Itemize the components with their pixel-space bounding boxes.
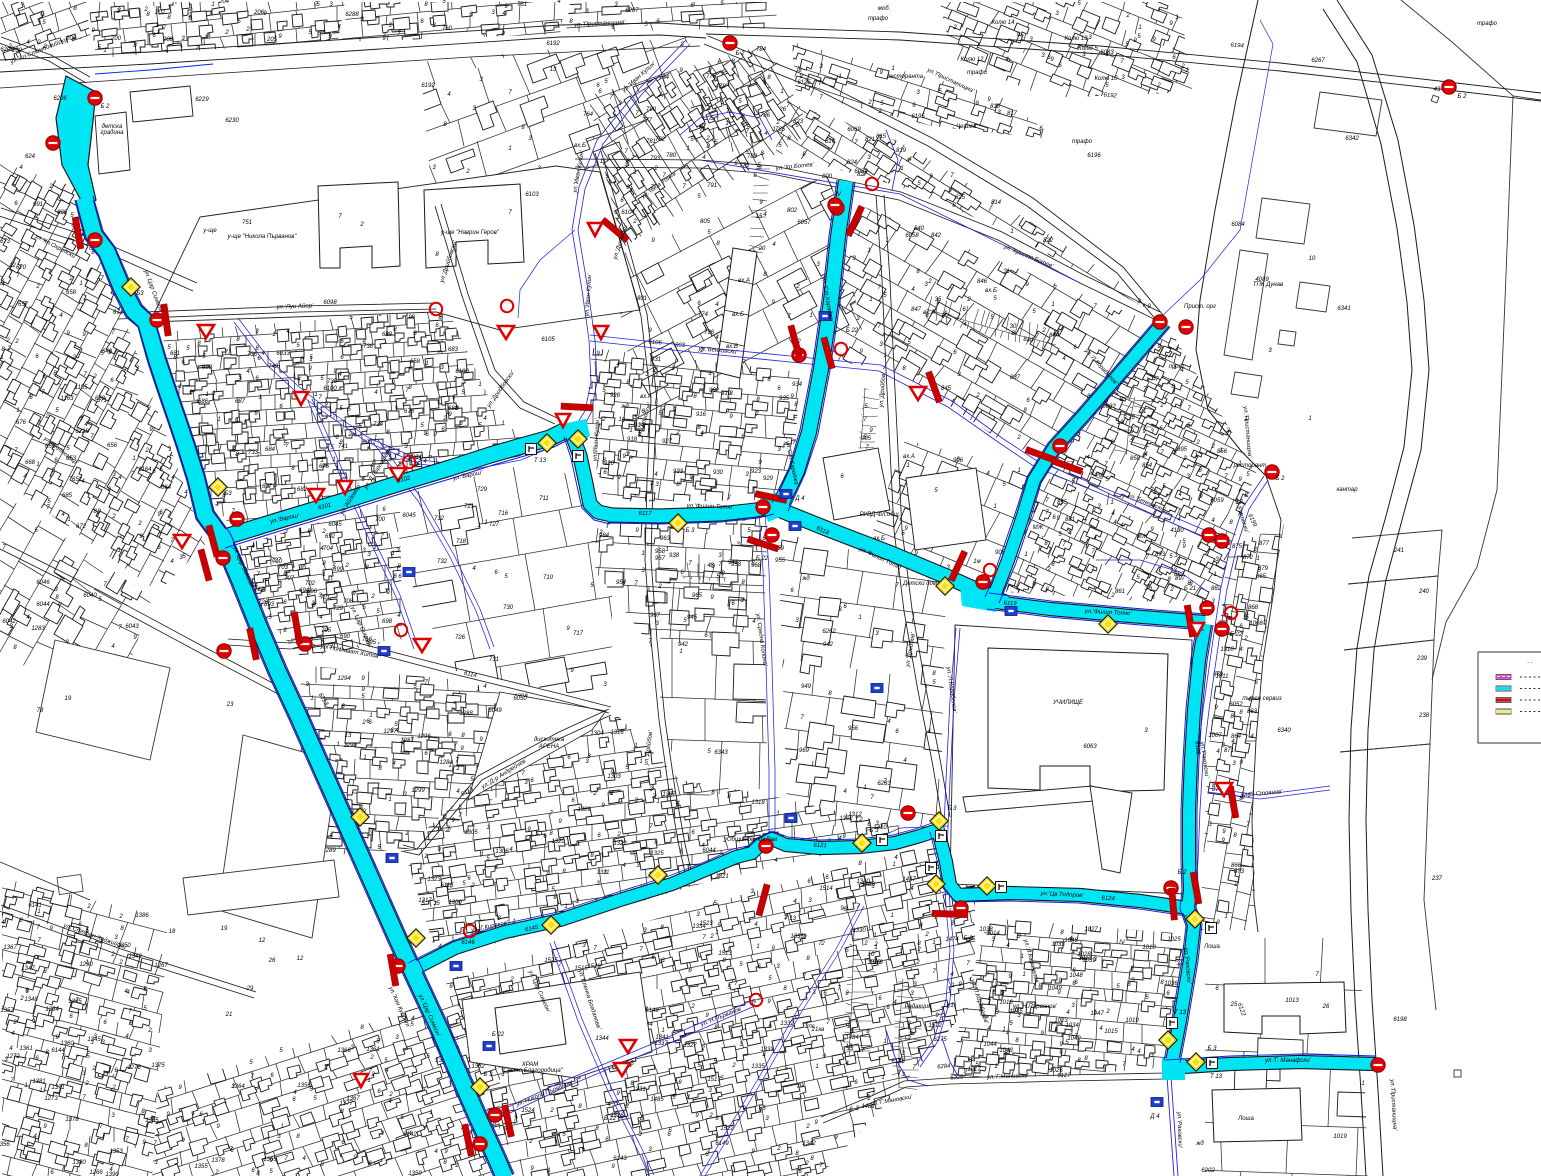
svg-text:2: 2 xyxy=(5,338,10,344)
svg-text:2: 2 xyxy=(709,934,714,940)
svg-text:1м: 1м xyxy=(973,559,980,565)
svg-text:686: 686 xyxy=(198,399,209,405)
svg-text:1517: 1517 xyxy=(707,1077,721,1083)
svg-text:2: 2 xyxy=(1005,1030,1010,1036)
svg-text:1347: 1347 xyxy=(21,966,35,972)
svg-text:1: 1 xyxy=(1185,68,1188,74)
svg-text:1: 1 xyxy=(951,983,954,989)
svg-text:949: 949 xyxy=(801,684,812,690)
svg-text:2: 2 xyxy=(214,1170,219,1176)
svg-text:6100: 6100 xyxy=(455,369,469,375)
svg-text:673: 673 xyxy=(0,239,11,245)
svg-text:1: 1 xyxy=(1022,972,1025,978)
svg-text:678: 678 xyxy=(404,409,415,415)
svg-text:6106: 6106 xyxy=(648,340,662,347)
svg-text:1: 1 xyxy=(1048,1056,1051,1062)
svg-text:827: 827 xyxy=(857,172,868,178)
svg-text:658: 658 xyxy=(410,359,421,365)
svg-text:846: 846 xyxy=(977,279,988,285)
svg-text:819: 819 xyxy=(896,148,907,154)
svg-text:1: 1 xyxy=(168,447,171,453)
svg-text:729: 729 xyxy=(333,606,344,612)
svg-text:2: 2 xyxy=(19,996,24,1002)
svg-text:13: 13 xyxy=(550,67,557,73)
svg-text:2: 2 xyxy=(1052,330,1057,336)
svg-text:2: 2 xyxy=(549,1108,554,1114)
svg-text:1: 1 xyxy=(1361,1081,1364,1087)
svg-text:2: 2 xyxy=(118,914,123,920)
svg-text:жд: жд xyxy=(801,576,810,582)
svg-text:1296: 1296 xyxy=(417,734,431,740)
svg-text:1518: 1518 xyxy=(869,960,883,966)
svg-text:РУВД-Фл.общ.: РУВД-Фл.общ. xyxy=(860,512,901,518)
svg-text:2: 2 xyxy=(146,406,151,412)
svg-text:Б 22: Б 22 xyxy=(756,556,769,562)
svg-text:6045: 6045 xyxy=(402,513,416,519)
svg-text:Б 22: Б 22 xyxy=(846,328,859,334)
svg-text:2: 2 xyxy=(442,416,447,422)
svg-text:727: 727 xyxy=(489,522,500,528)
svg-text:35: 35 xyxy=(935,297,942,303)
svg-text:1: 1 xyxy=(103,48,106,54)
svg-text:688: 688 xyxy=(202,365,213,371)
svg-text:872: 872 xyxy=(1243,555,1254,561)
svg-text:1: 1 xyxy=(314,392,317,398)
svg-text:1: 1 xyxy=(715,930,718,936)
svg-text:1364: 1364 xyxy=(45,1007,59,1013)
svg-text:6069: 6069 xyxy=(847,127,861,133)
svg-text:1: 1 xyxy=(486,825,489,831)
svg-text:1519: 1519 xyxy=(587,964,601,970)
svg-text:2: 2 xyxy=(323,1065,328,1071)
svg-text:855: 855 xyxy=(1057,500,1068,506)
svg-text:ІV: ІV xyxy=(835,192,842,198)
svg-text:1: 1 xyxy=(85,960,88,966)
svg-text:1: 1 xyxy=(1213,572,1216,578)
svg-text:792: 792 xyxy=(655,137,666,143)
svg-text:1034: 1034 xyxy=(1065,1023,1079,1029)
svg-text:19: 19 xyxy=(65,696,72,702)
svg-text:897: 897 xyxy=(1175,576,1186,582)
svg-text:727: 727 xyxy=(271,558,282,564)
svg-text:2: 2 xyxy=(858,817,863,823)
svg-text:1: 1 xyxy=(75,1168,78,1174)
svg-text:6267: 6267 xyxy=(1311,58,1325,64)
svg-text:1: 1 xyxy=(369,713,372,719)
svg-text:трафо: трафо xyxy=(1477,21,1498,27)
svg-text:жд: жд xyxy=(1195,1141,1204,1147)
svg-text:684: 684 xyxy=(265,447,276,453)
svg-text:1305: 1305 xyxy=(464,830,478,836)
svg-text:1018: 1018 xyxy=(1142,945,1156,951)
svg-text:4130: 4130 xyxy=(1170,528,1184,534)
svg-text:2: 2 xyxy=(446,828,451,834)
svg-text:2: 2 xyxy=(690,1004,695,1010)
svg-text:1357: 1357 xyxy=(0,1008,14,1014)
svg-text:1: 1 xyxy=(1002,1027,1005,1033)
svg-text:938: 938 xyxy=(669,553,680,559)
svg-text:873: 873 xyxy=(1234,869,1245,875)
svg-text:1: 1 xyxy=(869,297,872,303)
svg-text:20: 20 xyxy=(758,246,766,252)
svg-text:2: 2 xyxy=(1046,567,1051,573)
svg-text:трафо: трафо xyxy=(1072,139,1093,145)
svg-text:64: 64 xyxy=(969,1058,976,1064)
svg-text:672: 672 xyxy=(76,524,87,530)
svg-text:2: 2 xyxy=(84,1081,89,1087)
svg-text:2: 2 xyxy=(71,355,76,361)
svg-text:1: 1 xyxy=(890,913,893,919)
svg-text:1038: 1038 xyxy=(979,927,993,933)
svg-text:1336: 1336 xyxy=(790,934,804,940)
svg-text:1: 1 xyxy=(883,1039,886,1045)
svg-text:2: 2 xyxy=(1159,403,1164,409)
svg-text:239: 239 xyxy=(1416,656,1428,662)
svg-text:1: 1 xyxy=(476,687,479,693)
svg-text:2: 2 xyxy=(384,332,389,338)
svg-text:935: 935 xyxy=(779,396,790,402)
svg-text:1: 1 xyxy=(776,811,779,817)
svg-text:2: 2 xyxy=(470,883,475,889)
svg-text:13: 13 xyxy=(1117,420,1124,426)
svg-text:1013: 1013 xyxy=(1078,956,1092,962)
svg-text:777: 777 xyxy=(642,118,653,124)
svg-text:2: 2 xyxy=(653,166,658,172)
svg-text:Т 13: Т 13 xyxy=(784,916,797,922)
svg-text:945: 945 xyxy=(687,615,698,621)
svg-text:1016: 1016 xyxy=(999,1000,1013,1006)
svg-text:Колю 5: Колю 5 xyxy=(1078,46,1098,52)
svg-text:2: 2 xyxy=(68,276,73,282)
svg-text:1155: 1155 xyxy=(75,385,89,391)
svg-text:1: 1 xyxy=(994,1064,997,1070)
svg-text:238: 238 xyxy=(1418,713,1430,719)
svg-text:6149: 6149 xyxy=(645,1008,659,1014)
svg-text:1514: 1514 xyxy=(819,886,833,892)
svg-text:1: 1 xyxy=(67,517,70,523)
svg-text:1386: 1386 xyxy=(135,913,149,919)
svg-text:842: 842 xyxy=(931,233,942,239)
svg-text:1290: 1290 xyxy=(343,743,357,749)
svg-text:2: 2 xyxy=(118,960,123,966)
svg-text:1: 1 xyxy=(679,649,682,655)
svg-text:Б 21: Б 21 xyxy=(1184,586,1196,592)
svg-text:УЧИЛИЩЕ: УЧИЛИЩЕ xyxy=(1052,700,1084,706)
svg-text:2: 2 xyxy=(92,374,97,380)
svg-text:2: 2 xyxy=(528,1139,533,1145)
svg-text:6052: 6052 xyxy=(1229,702,1243,708)
svg-text:963: 963 xyxy=(660,536,671,542)
svg-text:1: 1 xyxy=(665,547,668,553)
svg-text:1: 1 xyxy=(211,2,214,8)
svg-text:991: 991 xyxy=(33,202,43,208)
svg-text:17: 17 xyxy=(858,1048,865,1054)
svg-text:1361: 1361 xyxy=(19,1046,32,1052)
svg-text:2: 2 xyxy=(624,1104,629,1110)
svg-text:6284: 6284 xyxy=(937,1063,951,1070)
svg-text:1378: 1378 xyxy=(65,1117,79,1123)
svg-text:6100: 6100 xyxy=(323,386,337,392)
svg-text:1: 1 xyxy=(32,1019,35,1025)
svg-text:677: 677 xyxy=(262,484,273,490)
svg-text:676: 676 xyxy=(16,420,27,426)
svg-text:1: 1 xyxy=(1219,448,1222,454)
svg-text:957: 957 xyxy=(655,556,666,562)
svg-text:1355: 1355 xyxy=(194,1164,208,1170)
svg-text:2: 2 xyxy=(632,219,637,225)
svg-text:1: 1 xyxy=(309,357,312,363)
svg-text:6198: 6198 xyxy=(1393,1017,1407,1023)
svg-text:928: 928 xyxy=(610,393,621,399)
svg-text:2: 2 xyxy=(12,1020,17,1026)
svg-text:6192: 6192 xyxy=(546,41,560,47)
svg-text:732: 732 xyxy=(437,559,448,565)
svg-text:854: 854 xyxy=(1142,463,1153,469)
svg-text:1015: 1015 xyxy=(1104,1029,1118,1035)
svg-text:1380: 1380 xyxy=(72,1160,86,1166)
svg-text:2: 2 xyxy=(509,977,514,983)
svg-text:1: 1 xyxy=(280,1124,283,1130)
svg-text:1163: 1163 xyxy=(61,396,75,402)
svg-text:Колю 14: Колю 14 xyxy=(992,20,1016,26)
svg-text:1019: 1019 xyxy=(1125,1018,1139,1024)
svg-text:783: 783 xyxy=(747,154,758,160)
svg-text:1: 1 xyxy=(892,862,895,868)
svg-text:Б 2: Б 2 xyxy=(1178,870,1188,876)
svg-text:923: 923 xyxy=(751,469,762,475)
svg-text:2: 2 xyxy=(289,639,294,645)
svg-text:774: 774 xyxy=(698,312,709,318)
svg-text:793: 793 xyxy=(650,156,661,162)
svg-text:934: 934 xyxy=(792,382,803,388)
svg-text:729: 729 xyxy=(477,487,488,493)
svg-text:6050: 6050 xyxy=(513,696,527,702)
svg-text:760: 760 xyxy=(442,26,453,32)
svg-text:ІV: ІV xyxy=(1119,940,1126,946)
svg-text:2: 2 xyxy=(1169,587,1174,593)
svg-text:1: 1 xyxy=(212,391,215,397)
svg-text:1: 1 xyxy=(267,605,270,611)
svg-text:2: 2 xyxy=(369,1055,374,1061)
svg-text:6057: 6057 xyxy=(797,220,811,226)
svg-text:12: 12 xyxy=(259,938,266,944)
svg-text:871: 871 xyxy=(1224,748,1234,754)
svg-text:Б3: Б3 xyxy=(136,291,144,297)
svg-text:761: 761 xyxy=(517,2,527,8)
svg-text:2пс: 2пс xyxy=(804,1024,815,1030)
svg-text:1: 1 xyxy=(456,766,459,772)
svg-text:764: 764 xyxy=(583,112,594,118)
svg-text:1: 1 xyxy=(477,523,480,529)
svg-text:802: 802 xyxy=(787,208,798,214)
svg-text:716: 716 xyxy=(498,511,509,517)
svg-text:1524: 1524 xyxy=(521,1108,535,1114)
svg-text:1294: 1294 xyxy=(337,676,351,682)
svg-text:687: 687 xyxy=(235,399,246,405)
svg-text:Б 2: Б 2 xyxy=(1458,94,1468,100)
svg-text:1323: 1323 xyxy=(427,877,441,883)
svg-text:932: 932 xyxy=(709,388,720,394)
svg-text:ул.’Г. Манафски’: ул.’Г. Манафски’ xyxy=(1264,1058,1312,1064)
svg-text:1: 1 xyxy=(671,366,674,372)
svg-text:Б 22: Б 22 xyxy=(604,1116,617,1122)
svg-text:656: 656 xyxy=(107,443,118,449)
svg-text:21: 21 xyxy=(1139,409,1147,415)
svg-text:1: 1 xyxy=(117,548,120,554)
svg-text:6119: 6119 xyxy=(1003,601,1017,608)
svg-text:Б 3: Б 3 xyxy=(1208,1046,1218,1052)
svg-text:2: 2 xyxy=(35,284,40,290)
svg-text:1017: 1017 xyxy=(967,1067,981,1073)
svg-text:1378: 1378 xyxy=(211,1158,225,1164)
svg-text:1: 1 xyxy=(16,408,19,414)
svg-text:2: 2 xyxy=(91,1066,96,1072)
svg-text:Б 3: Б 3 xyxy=(484,1072,494,1078)
svg-text:1: 1 xyxy=(1006,269,1009,275)
svg-text:ресторант: ресторант xyxy=(1233,463,1267,469)
svg-text:1: 1 xyxy=(634,743,637,749)
svg-text:791: 791 xyxy=(707,183,717,189)
svg-text:1: 1 xyxy=(815,1064,818,1070)
svg-text:2: 2 xyxy=(802,935,807,941)
svg-text:895: 895 xyxy=(1177,447,1188,453)
svg-text:вх.А: вх.А xyxy=(738,278,750,284)
svg-text:204: 204 xyxy=(218,0,230,5)
svg-text:2: 2 xyxy=(685,1095,690,1101)
svg-text:1356: 1356 xyxy=(0,1142,10,1148)
svg-text:2: 2 xyxy=(952,25,957,31)
svg-text:1318: 1318 xyxy=(751,800,765,806)
svg-text:30: 30 xyxy=(1010,324,1017,330)
svg-text:6103: 6103 xyxy=(525,192,539,198)
svg-text:дискотека: дискотека xyxy=(534,737,565,743)
svg-text:2: 2 xyxy=(1110,593,1115,599)
svg-text:712: 712 xyxy=(434,516,445,522)
svg-text:1309: 1309 xyxy=(577,807,591,813)
svg-text:2: 2 xyxy=(705,136,710,142)
svg-text:734: 734 xyxy=(373,422,384,428)
svg-text:927: 927 xyxy=(662,439,673,445)
svg-text:1359: 1359 xyxy=(408,1171,422,1176)
svg-text:78: 78 xyxy=(37,708,44,714)
svg-text:19: 19 xyxy=(221,926,228,932)
svg-text:1: 1 xyxy=(702,124,705,130)
svg-text:1304: 1304 xyxy=(590,731,604,737)
svg-text:Б 22: Б 22 xyxy=(492,1032,505,1038)
svg-text:1: 1 xyxy=(1194,453,1197,459)
svg-text:847: 847 xyxy=(911,307,922,313)
svg-text:2: 2 xyxy=(344,563,349,569)
svg-text:1: 1 xyxy=(629,428,632,434)
svg-text:2: 2 xyxy=(927,279,932,285)
svg-text:Лоша: Лоша xyxy=(1237,1116,1254,1122)
svg-text:2: 2 xyxy=(86,904,91,910)
svg-text:905: 905 xyxy=(861,436,872,442)
svg-text:2: 2 xyxy=(1016,435,1021,441)
svg-text:6043: 6043 xyxy=(125,624,139,630)
svg-text:2: 2 xyxy=(776,1146,781,1152)
svg-text:1273: 1273 xyxy=(44,1096,58,1102)
svg-text:1: 1 xyxy=(656,799,659,805)
svg-text:ул.’Н.Първанов’: ул.’Н.Първанов’ xyxy=(1012,1004,1058,1010)
svg-text:Общинско-кр.Лам: Общинско-кр.Лам xyxy=(727,837,777,843)
svg-text:Лоша: Лоша xyxy=(1203,944,1220,950)
svg-text:670: 670 xyxy=(16,265,27,271)
svg-text:1: 1 xyxy=(867,248,870,254)
svg-text:1366: 1366 xyxy=(337,1048,351,1054)
svg-text:2: 2 xyxy=(616,832,621,838)
svg-text:240: 240 xyxy=(1418,589,1430,595)
svg-text:205: 205 xyxy=(266,37,278,43)
svg-text:1485: 1485 xyxy=(650,1097,664,1103)
svg-text:1: 1 xyxy=(641,551,644,557)
svg-text:2: 2 xyxy=(924,932,929,938)
svg-text:1011: 1011 xyxy=(1216,674,1229,680)
svg-text:794: 794 xyxy=(659,75,670,81)
svg-text:1276: 1276 xyxy=(127,1065,141,1071)
svg-text:1371: 1371 xyxy=(51,1085,64,1091)
svg-text:2: 2 xyxy=(44,414,49,420)
svg-text:2: 2 xyxy=(625,452,630,458)
svg-text:6104: 6104 xyxy=(621,210,635,216)
svg-text:1474: 1474 xyxy=(945,937,959,943)
svg-text:43: 43 xyxy=(1434,87,1441,93)
svg-text:1283: 1283 xyxy=(31,626,45,632)
svg-text:1: 1 xyxy=(363,755,366,761)
svg-text:6049: 6049 xyxy=(488,708,502,714)
svg-text:1332: 1332 xyxy=(780,1021,794,1027)
svg-text:2: 2 xyxy=(14,339,19,345)
svg-text:6143: 6143 xyxy=(613,1156,627,1162)
svg-text:2: 2 xyxy=(1041,328,1046,334)
svg-text:6206: 6206 xyxy=(53,96,67,102)
svg-text:1367: 1367 xyxy=(3,945,17,951)
svg-text:Редакция: Редакция xyxy=(905,1004,932,1010)
svg-text:6063: 6063 xyxy=(1083,744,1097,750)
svg-text:730: 730 xyxy=(503,605,514,611)
svg-text:6127: 6127 xyxy=(1057,1073,1071,1079)
svg-text:2: 2 xyxy=(708,1113,713,1119)
svg-text:2: 2 xyxy=(465,169,470,175)
svg-text:12: 12 xyxy=(297,956,304,962)
svg-text:1321: 1321 xyxy=(715,874,728,880)
svg-text:1: 1 xyxy=(863,785,866,791)
svg-text:6142: 6142 xyxy=(403,1132,417,1138)
svg-text:Б 2: Б 2 xyxy=(964,936,974,942)
svg-text:865: 865 xyxy=(1256,574,1267,580)
svg-text:1027: 1027 xyxy=(1084,927,1098,933)
svg-text:2: 2 xyxy=(36,40,41,46)
svg-text:6202: 6202 xyxy=(1201,1168,1215,1174)
svg-text:6226: 6226 xyxy=(950,1074,964,1081)
svg-text:803: 803 xyxy=(675,343,686,349)
svg-text:784: 784 xyxy=(756,47,767,53)
svg-text:6125: 6125 xyxy=(1193,741,1200,755)
svg-text:1299: 1299 xyxy=(411,788,425,794)
svg-text:6084: 6084 xyxy=(1231,222,1245,228)
svg-text:824: 824 xyxy=(847,160,858,166)
svg-text:1: 1 xyxy=(633,170,636,176)
svg-text:822: 822 xyxy=(1043,238,1054,244)
svg-text:1361: 1361 xyxy=(366,1047,379,1053)
svg-text:668: 668 xyxy=(25,460,36,466)
svg-text:МЖ: МЖ xyxy=(1033,525,1044,531)
svg-text:1375: 1375 xyxy=(151,1063,165,1069)
svg-text:1: 1 xyxy=(217,417,220,423)
svg-text:2: 2 xyxy=(805,1124,810,1130)
svg-text:Б 3: Б 3 xyxy=(686,528,696,534)
svg-text:1331: 1331 xyxy=(632,1087,645,1093)
